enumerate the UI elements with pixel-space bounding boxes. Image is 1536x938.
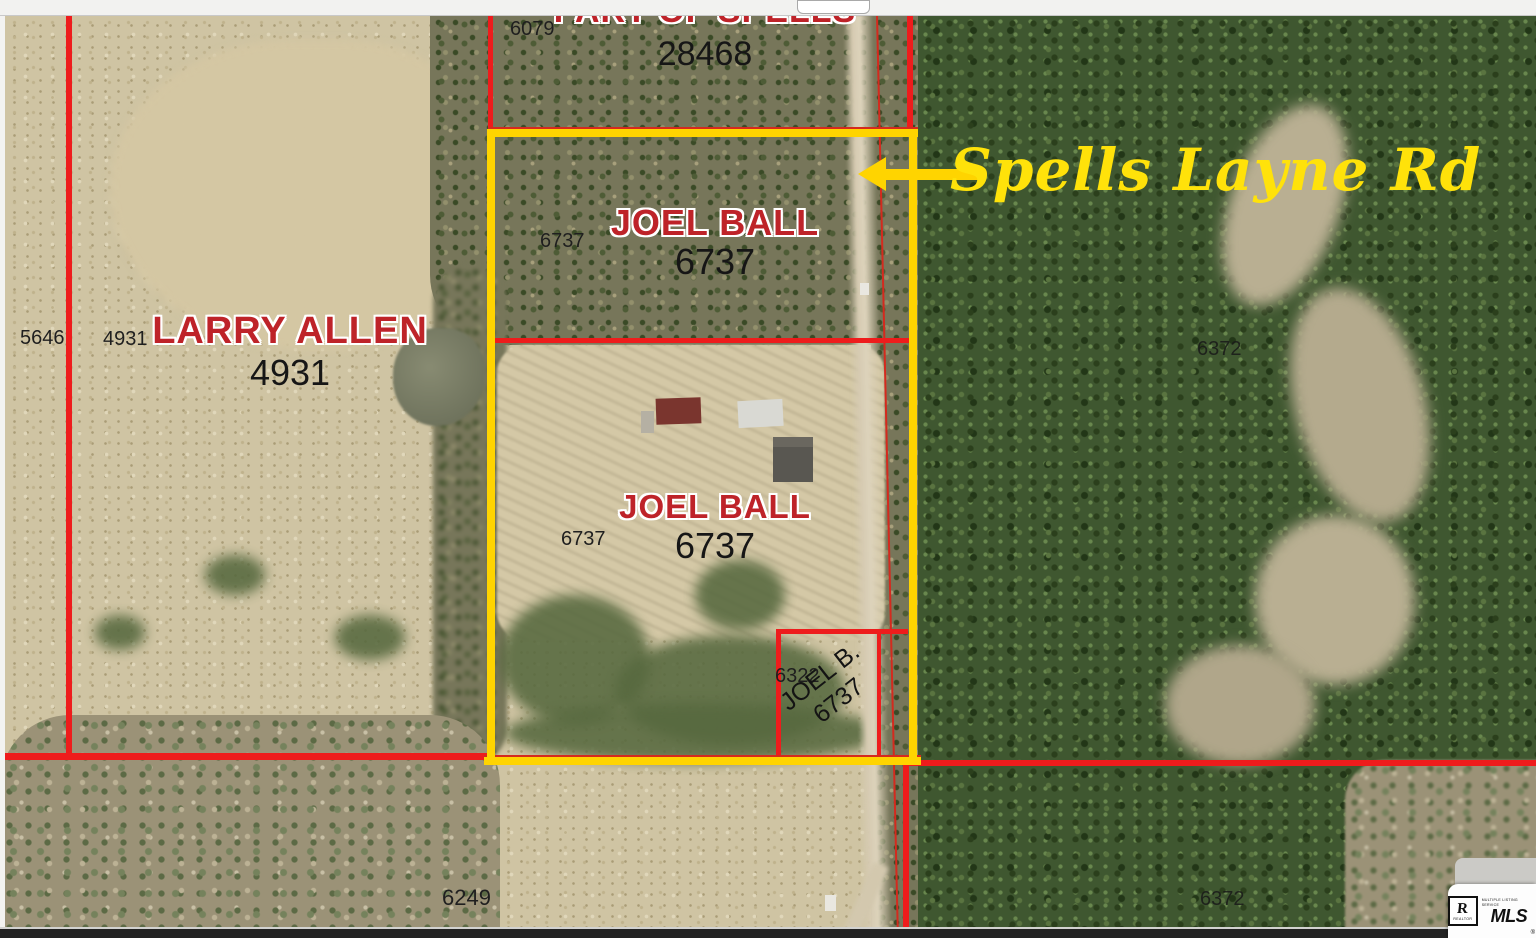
parcel-number-4931: 4931 <box>120 352 460 394</box>
realtor-r-letter: R <box>1457 902 1469 917</box>
mls-letters: MLS <box>1491 908 1528 925</box>
realtor-wordmark: REALTOR <box>1453 917 1472 921</box>
parcel-ref-6249: 6249 <box>442 885 491 911</box>
tree-clump <box>695 560 785 630</box>
parcel-ref-4931: 4931 <box>103 328 148 351</box>
road-arrow-head-icon <box>858 157 886 191</box>
owner-label-joel-ball-upper: JOEL BALL <box>560 202 870 244</box>
parcel-ref-6737-upper: 6737 <box>540 230 585 253</box>
parcel-line-top-left <box>488 15 493 131</box>
tree-clump <box>335 615 405 660</box>
forest-clearing <box>1165 645 1315 765</box>
parcel-ref-5646: 5646 <box>20 327 65 350</box>
parcel-line-top-right <box>907 15 913 133</box>
realtor-logo-icon: R REALTOR <box>1448 896 1478 926</box>
small-parcel-top <box>776 629 908 634</box>
tree-clump <box>205 555 265 595</box>
owner-label-larry-allen: LARRY ALLEN <box>120 310 460 353</box>
parcel-line-south-east <box>905 760 1536 766</box>
registered-mark: ® <box>1531 930 1535 936</box>
map-control-button[interactable] <box>797 0 870 14</box>
subject-parcel-left <box>487 129 495 765</box>
parcel-number-28468: 28468 <box>565 35 845 74</box>
mls-wordmark: MULTIPLE LISTING SERVICE MLS <box>1482 898 1536 925</box>
roadside-structure <box>825 895 836 911</box>
parcel-ref-6079: 6079 <box>510 18 555 41</box>
parcel-ref-6372-lower: 6372 <box>1200 888 1245 911</box>
subject-parcel-right <box>909 133 917 765</box>
parcel-ref-6737-lower: 6737 <box>561 528 606 551</box>
parcel-number-6737-upper: 6737 <box>565 241 865 283</box>
barn-red-roof <box>656 397 702 425</box>
top-white-strip <box>0 0 1536 16</box>
owner-label-top-clipped: PART OF SPELLS <box>545 15 865 29</box>
house-dark-roof <box>773 437 813 482</box>
aerial-map: Spells Layne Rd PART OF SPELLS 6079 2846… <box>5 15 1536 929</box>
parcel-line-west-vertical <box>66 15 72 757</box>
parcel-line-south-west <box>5 753 489 760</box>
subject-parcel-top <box>488 129 918 137</box>
owner-label-joel-ball-lower: JOEL BALL <box>560 488 870 526</box>
screenshot: Spells Layne Rd PART OF SPELLS 6079 2846… <box>0 0 1536 938</box>
parcel-number-6737-lower: 6737 <box>565 525 865 567</box>
barn-white-roof <box>737 399 783 428</box>
mls-branding-panel: R REALTOR MULTIPLE LISTING SERVICE MLS ® <box>1448 884 1536 938</box>
parcel-ref-6372-upper: 6372 <box>1197 338 1242 361</box>
parcel-line-south-vertical <box>903 762 909 929</box>
subject-parcel-bottom <box>484 757 921 765</box>
bottom-dark-bar <box>0 929 1536 938</box>
parcel-line-mid-horizontal <box>492 338 912 343</box>
shed <box>641 411 654 433</box>
tree-clump <box>95 615 145 650</box>
road-name-label: Spells Layne Rd <box>950 136 1481 204</box>
terrain-scrub-southwest <box>5 715 500 929</box>
roadside-structure <box>860 283 869 295</box>
